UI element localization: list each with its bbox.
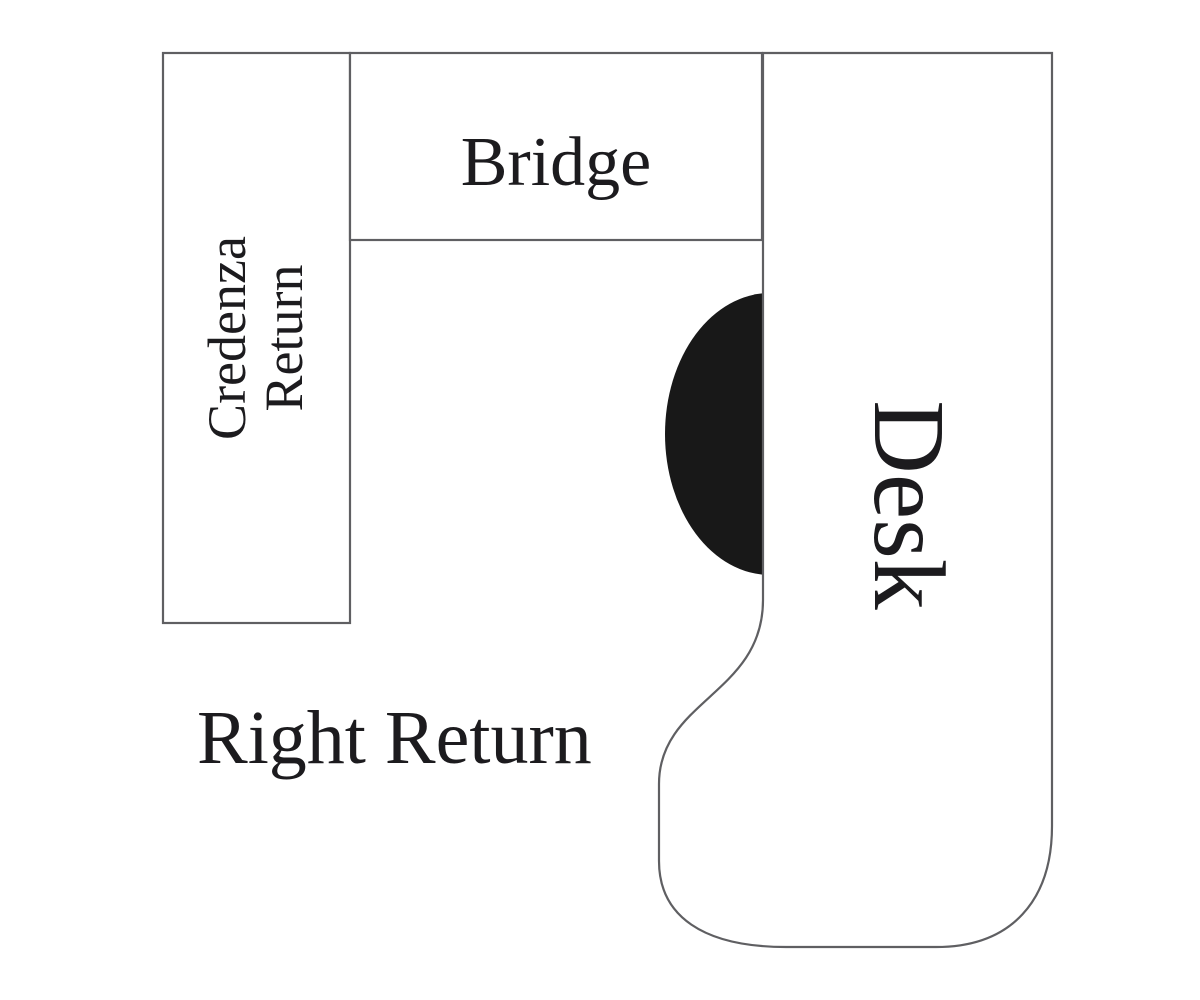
- right-return-label: Right Return: [197, 700, 592, 776]
- bridge-label: Bridge: [350, 126, 762, 200]
- floorplan-diagram: Bridge Credenza Return Desk Right Return: [0, 0, 1200, 1000]
- desk-label: Desk: [857, 400, 959, 610]
- credenza-return-label: Credenza Return: [199, 236, 313, 440]
